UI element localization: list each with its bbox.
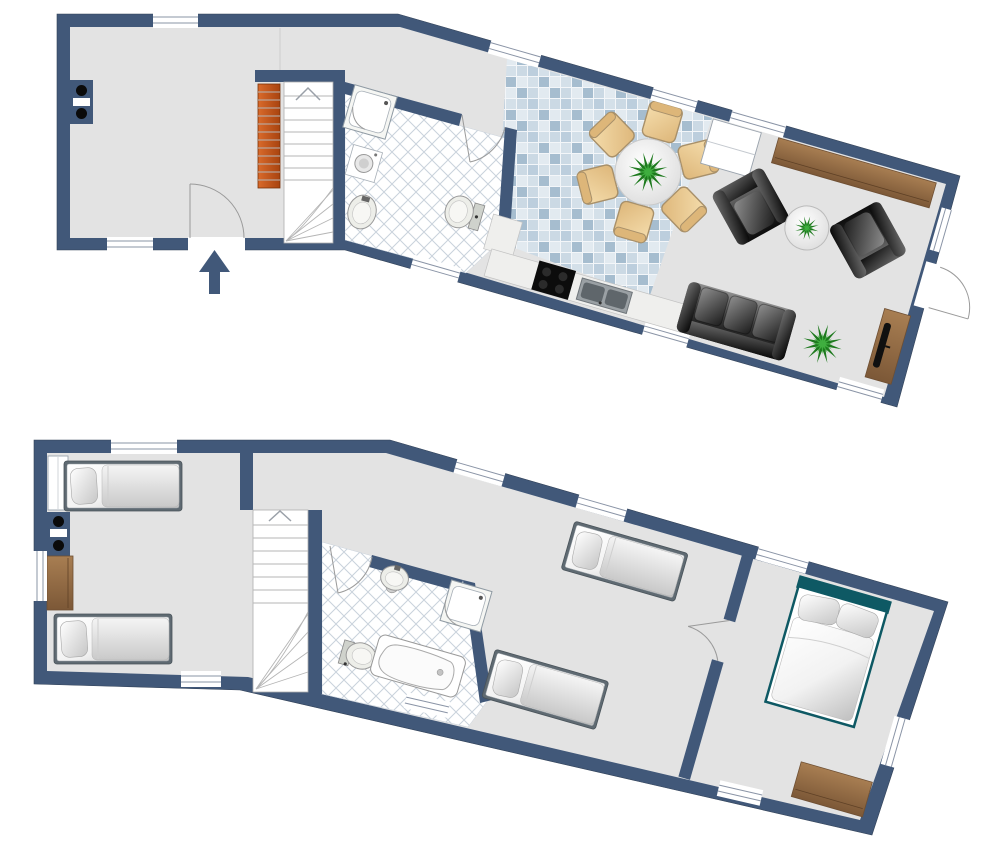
window [33,551,47,601]
window [153,13,198,28]
stair-bath-wall [308,510,322,694]
entrance-arrow-icon [199,250,230,294]
window [181,671,221,687]
radiator [258,84,280,188]
bedroom-wall [240,453,253,510]
floor-plan-page [0,0,1000,857]
wall-stove [47,512,70,556]
stair-right-wall [333,82,345,243]
upper-floor-plan [33,439,948,835]
single-bed[interactable] [64,461,182,511]
window [111,439,177,454]
floor-plan-drawing [0,0,1000,857]
staircase[interactable] [284,82,333,243]
window [107,237,153,252]
staircase[interactable] [253,510,308,692]
ground-floor-plan [57,13,1000,421]
stair-top-wall [255,70,345,82]
dresser [47,556,73,610]
single-bed[interactable] [54,614,172,664]
wall-stove [70,80,93,124]
